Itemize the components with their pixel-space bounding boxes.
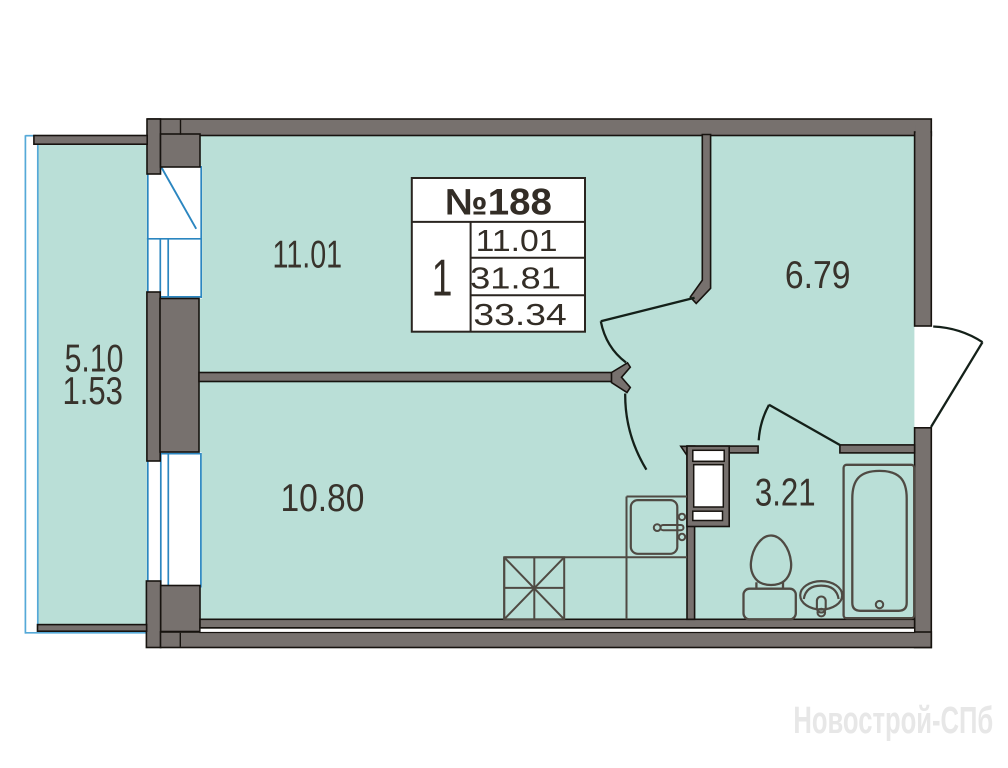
svg-text:Новострой-СПб: Новострой-СПб [793,699,993,741]
svg-text:6.79: 6.79 [785,253,851,297]
svg-text:№188: №188 [445,181,552,222]
svg-text:10.80: 10.80 [280,475,364,519]
svg-text:3.21: 3.21 [755,471,816,514]
svg-text:1.53: 1.53 [62,370,122,413]
svg-text:1: 1 [432,248,453,307]
svg-text:31.81: 31.81 [470,261,561,296]
svg-text:11.01: 11.01 [273,233,343,276]
svg-text:33.34: 33.34 [473,298,566,332]
svg-text:11.01: 11.01 [476,223,558,257]
